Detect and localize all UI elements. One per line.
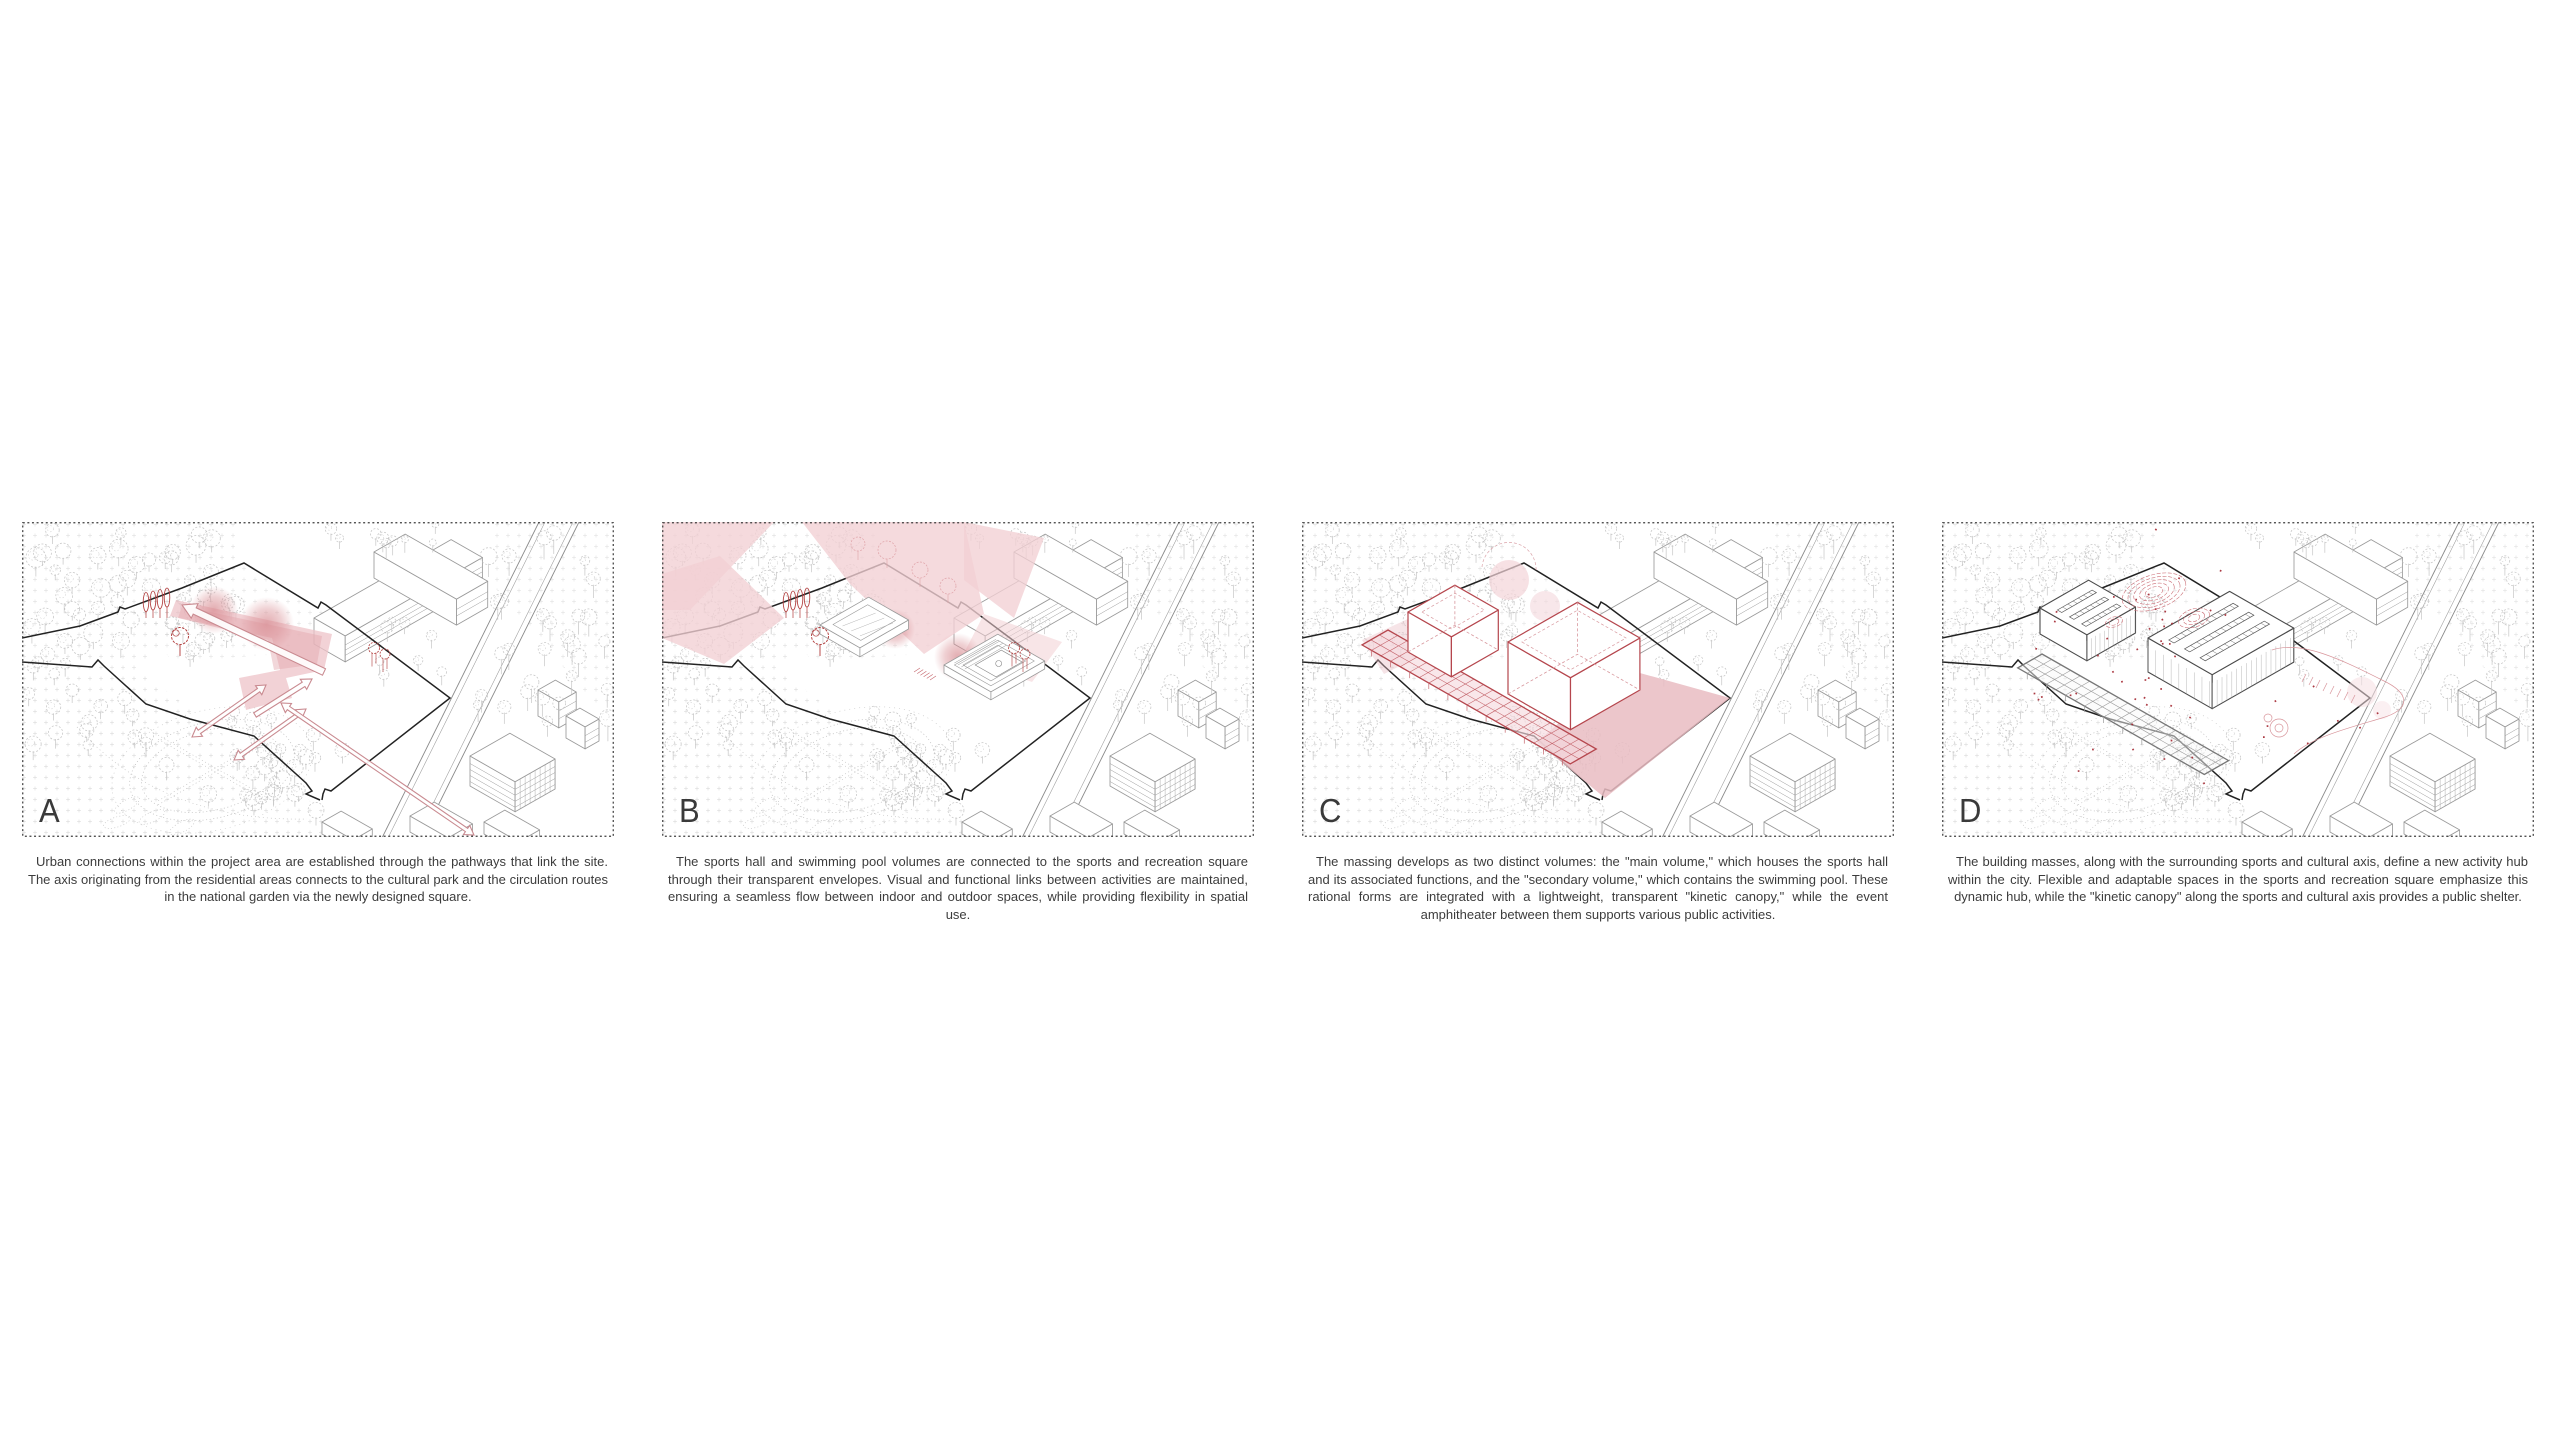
caption-c: The massing develops as two distinct vol… <box>1302 853 1894 923</box>
caption-b: The sports hall and swimming pool volume… <box>662 853 1254 923</box>
presentation-board: A B C D Urban connections within the pro… <box>0 0 2560 1440</box>
panel-letter-d: D <box>1959 794 1981 827</box>
panel-b: B <box>662 522 1254 837</box>
panel-d: D <box>1942 522 2534 837</box>
caption-a: Urban connections within the project are… <box>22 853 614 906</box>
panel-letter-a: A <box>39 794 60 827</box>
panel-a: A <box>22 522 614 837</box>
panel-letter-c: C <box>1319 794 1341 827</box>
diagram-b-links <box>662 522 1254 837</box>
panel-c: C <box>1302 522 1894 837</box>
diagram-d-activity-hub <box>1942 522 2534 837</box>
panel-letter-b: B <box>679 794 700 827</box>
diagram-c-massing <box>1302 522 1894 837</box>
diagram-a-urban-connections <box>22 522 614 837</box>
caption-d: The building masses, along with the surr… <box>1942 853 2534 906</box>
